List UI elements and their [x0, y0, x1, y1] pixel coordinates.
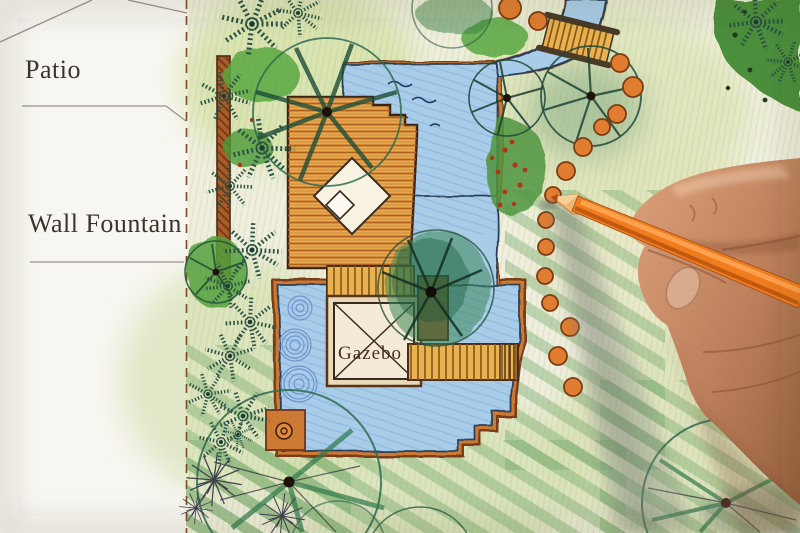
- wall-fountain-label: Wall Fountain: [28, 209, 182, 239]
- gazebo-label: Gazebo: [326, 343, 414, 365]
- tree-dark-over-gazebo: [378, 230, 494, 346]
- corner-fountain: [266, 410, 305, 450]
- photo-of-landscape-plan: Patio Wall Fountain Gazebo: [0, 0, 800, 533]
- patio-label: Patio: [25, 55, 81, 85]
- walkway-to-stones: [408, 344, 518, 380]
- plan-drawing: [0, 0, 800, 533]
